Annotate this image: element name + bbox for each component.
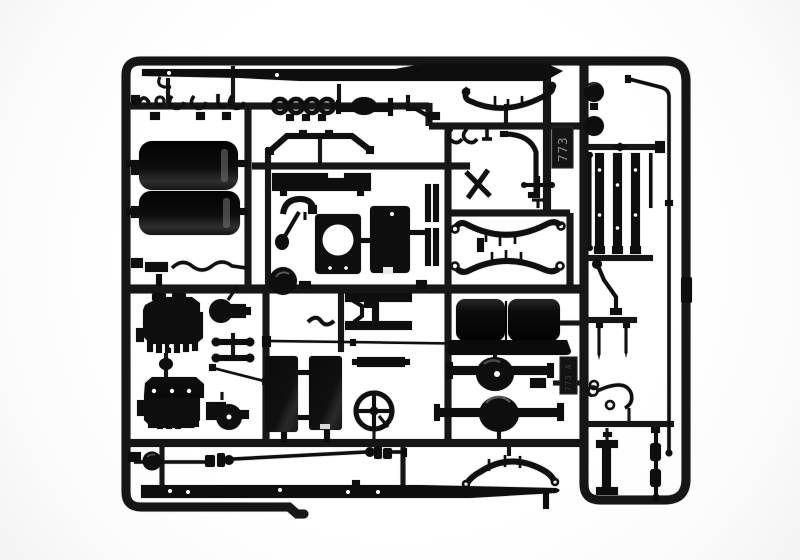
engine-mount-links-part [212,333,255,363]
small-hooks-right-part [449,128,493,143]
linkage-rod-part [209,364,269,385]
brake-lever-part [592,259,622,315]
mold-number-text: 773 [555,136,570,162]
needle-pins-part [596,323,630,360]
channel-strips-part [425,184,439,266]
mold-number-secondary-text: 773 A [564,363,573,391]
fuel-tank-lower-part [126,191,248,235]
axle-tube-part [336,97,393,116]
wavy-rod-part [145,262,246,286]
tank-side-panel-part [309,356,342,443]
fan-shroud-panel-part [315,214,361,274]
leaf-spring-top-part [463,83,555,110]
mold-number-plate-secondary: 773 A [560,357,598,396]
pulley-disc-part [269,267,297,295]
small-brackets-part [352,300,372,322]
cab-back-panel-part [361,206,427,273]
gearbox-lower-part [206,392,249,430]
bench-seat-part [447,299,571,355]
frame-channel-strips-part [594,153,653,254]
leaf-spring-bottom-part [463,455,558,487]
engine-block-upper-part [136,293,203,353]
battery-box-panel-part [265,356,309,443]
sprue-photo-svg: 773 [0,0,800,560]
exhaust-pipe-part [500,131,540,198]
engine-block-lower-part [137,353,204,429]
runner-grid [126,61,692,486]
cross-brace-part [466,170,490,198]
step-bar-part [272,173,371,196]
drive-shaft-part [134,446,407,471]
leaf-spring-pair-part [452,222,565,272]
fuel-tank-upper-part [126,141,248,190]
running-board-step-part [352,357,410,367]
chassis-rail-top-part [142,63,563,87]
i-beam-bracket-part [596,432,618,495]
h-bracket-part [345,293,412,330]
s-hook-part [308,318,334,325]
segmented-rod-part [650,427,661,502]
mold-number-plate: 773 [552,127,573,168]
mounting-rings-part [273,99,334,121]
steering-wheel-part [356,393,392,429]
mudguard-bracket-part [275,199,317,250]
sprue-photo: 773 [0,0,800,560]
